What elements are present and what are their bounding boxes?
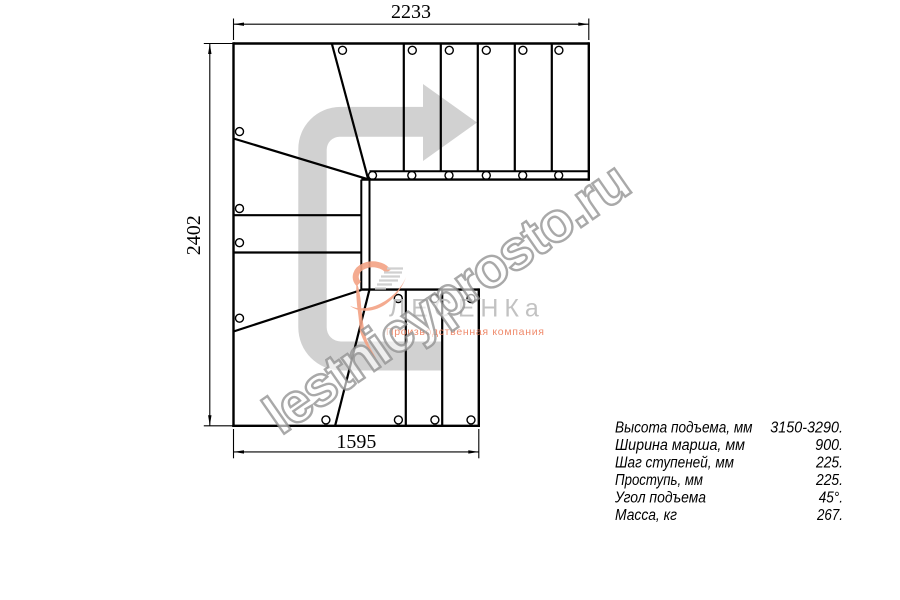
- svg-text:Проступь, мм: Проступь, мм: [615, 472, 703, 489]
- svg-text:225.: 225.: [815, 455, 843, 472]
- svg-text:Угол подъема: Угол подъема: [614, 490, 706, 507]
- svg-text:Высота подъема, мм: Высота подъема, мм: [615, 419, 753, 436]
- svg-text:1595: 1595: [336, 431, 376, 453]
- svg-text:2402: 2402: [183, 215, 205, 255]
- svg-text:267.: 267.: [816, 507, 843, 524]
- svg-text:900.: 900.: [815, 437, 843, 454]
- svg-text:Ширина марша, мм: Ширина марша, мм: [615, 437, 745, 454]
- svg-text:2233: 2233: [391, 1, 431, 23]
- svg-text:45°.: 45°.: [819, 490, 843, 507]
- svg-text:3150-3290.: 3150-3290.: [770, 419, 843, 436]
- svg-text:Масса, кг: Масса, кг: [615, 507, 677, 524]
- svg-text:225.: 225.: [815, 472, 843, 489]
- svg-text:Шаг ступеней, мм: Шаг ступеней, мм: [615, 455, 734, 472]
